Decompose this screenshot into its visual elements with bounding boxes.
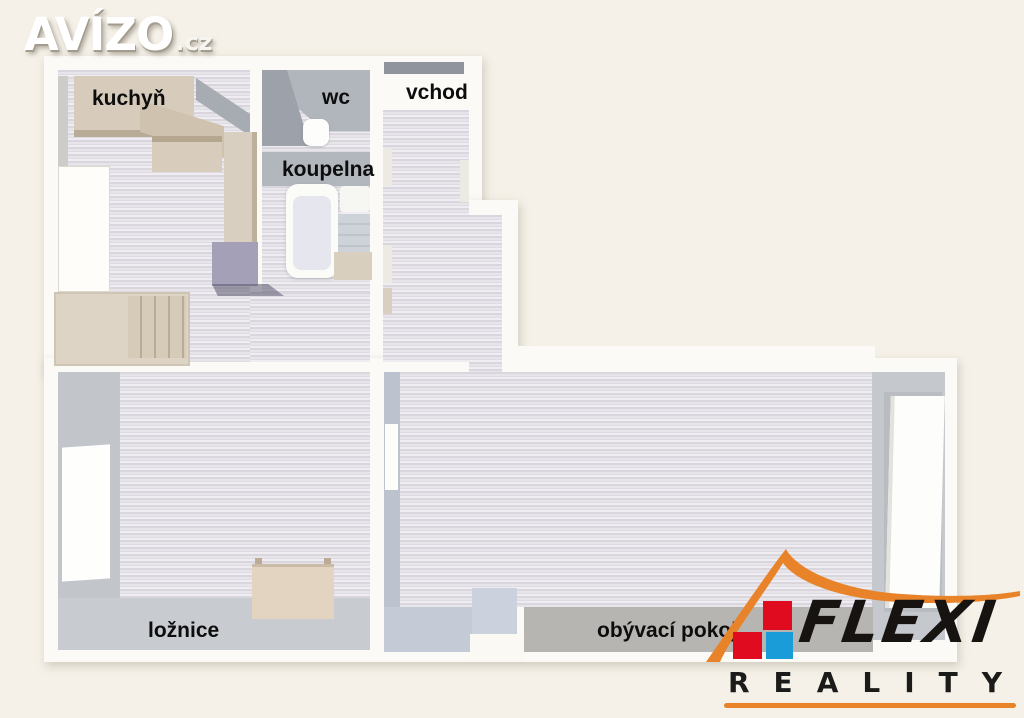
kitchen-purple-unit [212, 242, 258, 286]
kitchen-counter [152, 136, 222, 172]
living-room-left-wall [384, 372, 400, 636]
flexi-logo-subtitle: REALITY [728, 666, 1024, 699]
room-label-koupelna: koupelna [282, 158, 374, 182]
red-square-icon [733, 632, 762, 659]
room-label-wc: wc [322, 86, 350, 110]
room-label-loznice: ložnice [148, 619, 219, 643]
living-room-top-wall [502, 346, 875, 372]
kitchen-window [58, 166, 110, 292]
wardrobe-sliding-doors [128, 296, 186, 358]
living-room-bottom-notch [470, 634, 524, 662]
bed [252, 564, 334, 619]
avizo-watermark: AVÍZO.cz [24, 8, 213, 61]
living-room-left-window [385, 424, 398, 490]
room-label-kuchyn: kuchyň [92, 87, 166, 111]
bedroom-livingroom-divider-wall [370, 372, 384, 650]
corridor-shelf [383, 288, 392, 314]
entrance-corridor-floor [383, 110, 469, 362]
living-room-bottom-wall-left [384, 607, 474, 652]
kitchen-tall-cabinet [224, 132, 257, 242]
hallway-floor [250, 292, 370, 362]
flexi-logo-name: FLEXI [795, 588, 1024, 656]
corridor-door-left-1 [383, 148, 392, 186]
living-room-bottom-block [472, 588, 517, 636]
bedroom-window [62, 444, 110, 581]
avizo-brand-text: AVÍZO [24, 8, 173, 61]
sink [340, 186, 370, 212]
washing-machine [338, 214, 370, 252]
flexi-underline [724, 703, 1016, 708]
avizo-tld-text: .cz [175, 28, 212, 56]
floorplan-image: kuchyň wc vchod koupelna ložnice obývací… [0, 0, 1024, 718]
blue-square-icon [766, 632, 793, 659]
toilet [303, 119, 329, 146]
bathtub-inner [293, 196, 331, 270]
room-label-vchod: vchod [406, 81, 468, 105]
red-square-icon [763, 601, 792, 630]
corridor-door-left-2 [383, 245, 392, 283]
entrance-door-band [384, 62, 464, 74]
corridor-door-right [460, 160, 469, 202]
bathroom-cabinet [334, 252, 372, 280]
entrance-corridor-floor-wide [469, 215, 502, 372]
